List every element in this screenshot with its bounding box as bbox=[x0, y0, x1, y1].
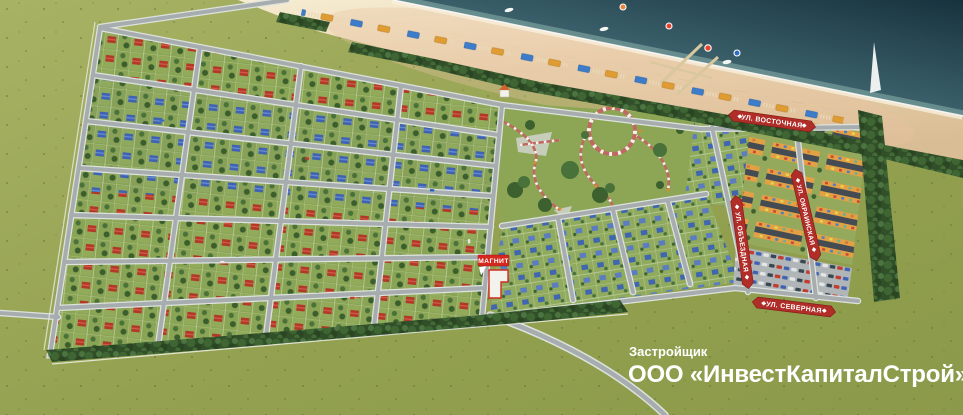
developer-name: ООО «ИнвестКапиталСтрой» bbox=[628, 361, 963, 388]
master-plan-map: МАГНИТ УЛ. ВОСТОЧНАЯ УЛ. ОКРАИНСКАЯ УЛ. … bbox=[0, 0, 963, 415]
master-plan-svg: МАГНИТ УЛ. ВОСТОЧНАЯ УЛ. ОКРАИНСКАЯ УЛ. … bbox=[0, 0, 963, 415]
buoy bbox=[620, 4, 626, 10]
buoy bbox=[734, 50, 740, 56]
developer-caption: Застройщик bbox=[629, 344, 708, 359]
buoy bbox=[705, 45, 711, 51]
magnit-sign-label: МАГНИТ bbox=[478, 258, 509, 265]
magnit-sign: МАГНИТ bbox=[478, 255, 509, 266]
buoy bbox=[666, 23, 672, 29]
